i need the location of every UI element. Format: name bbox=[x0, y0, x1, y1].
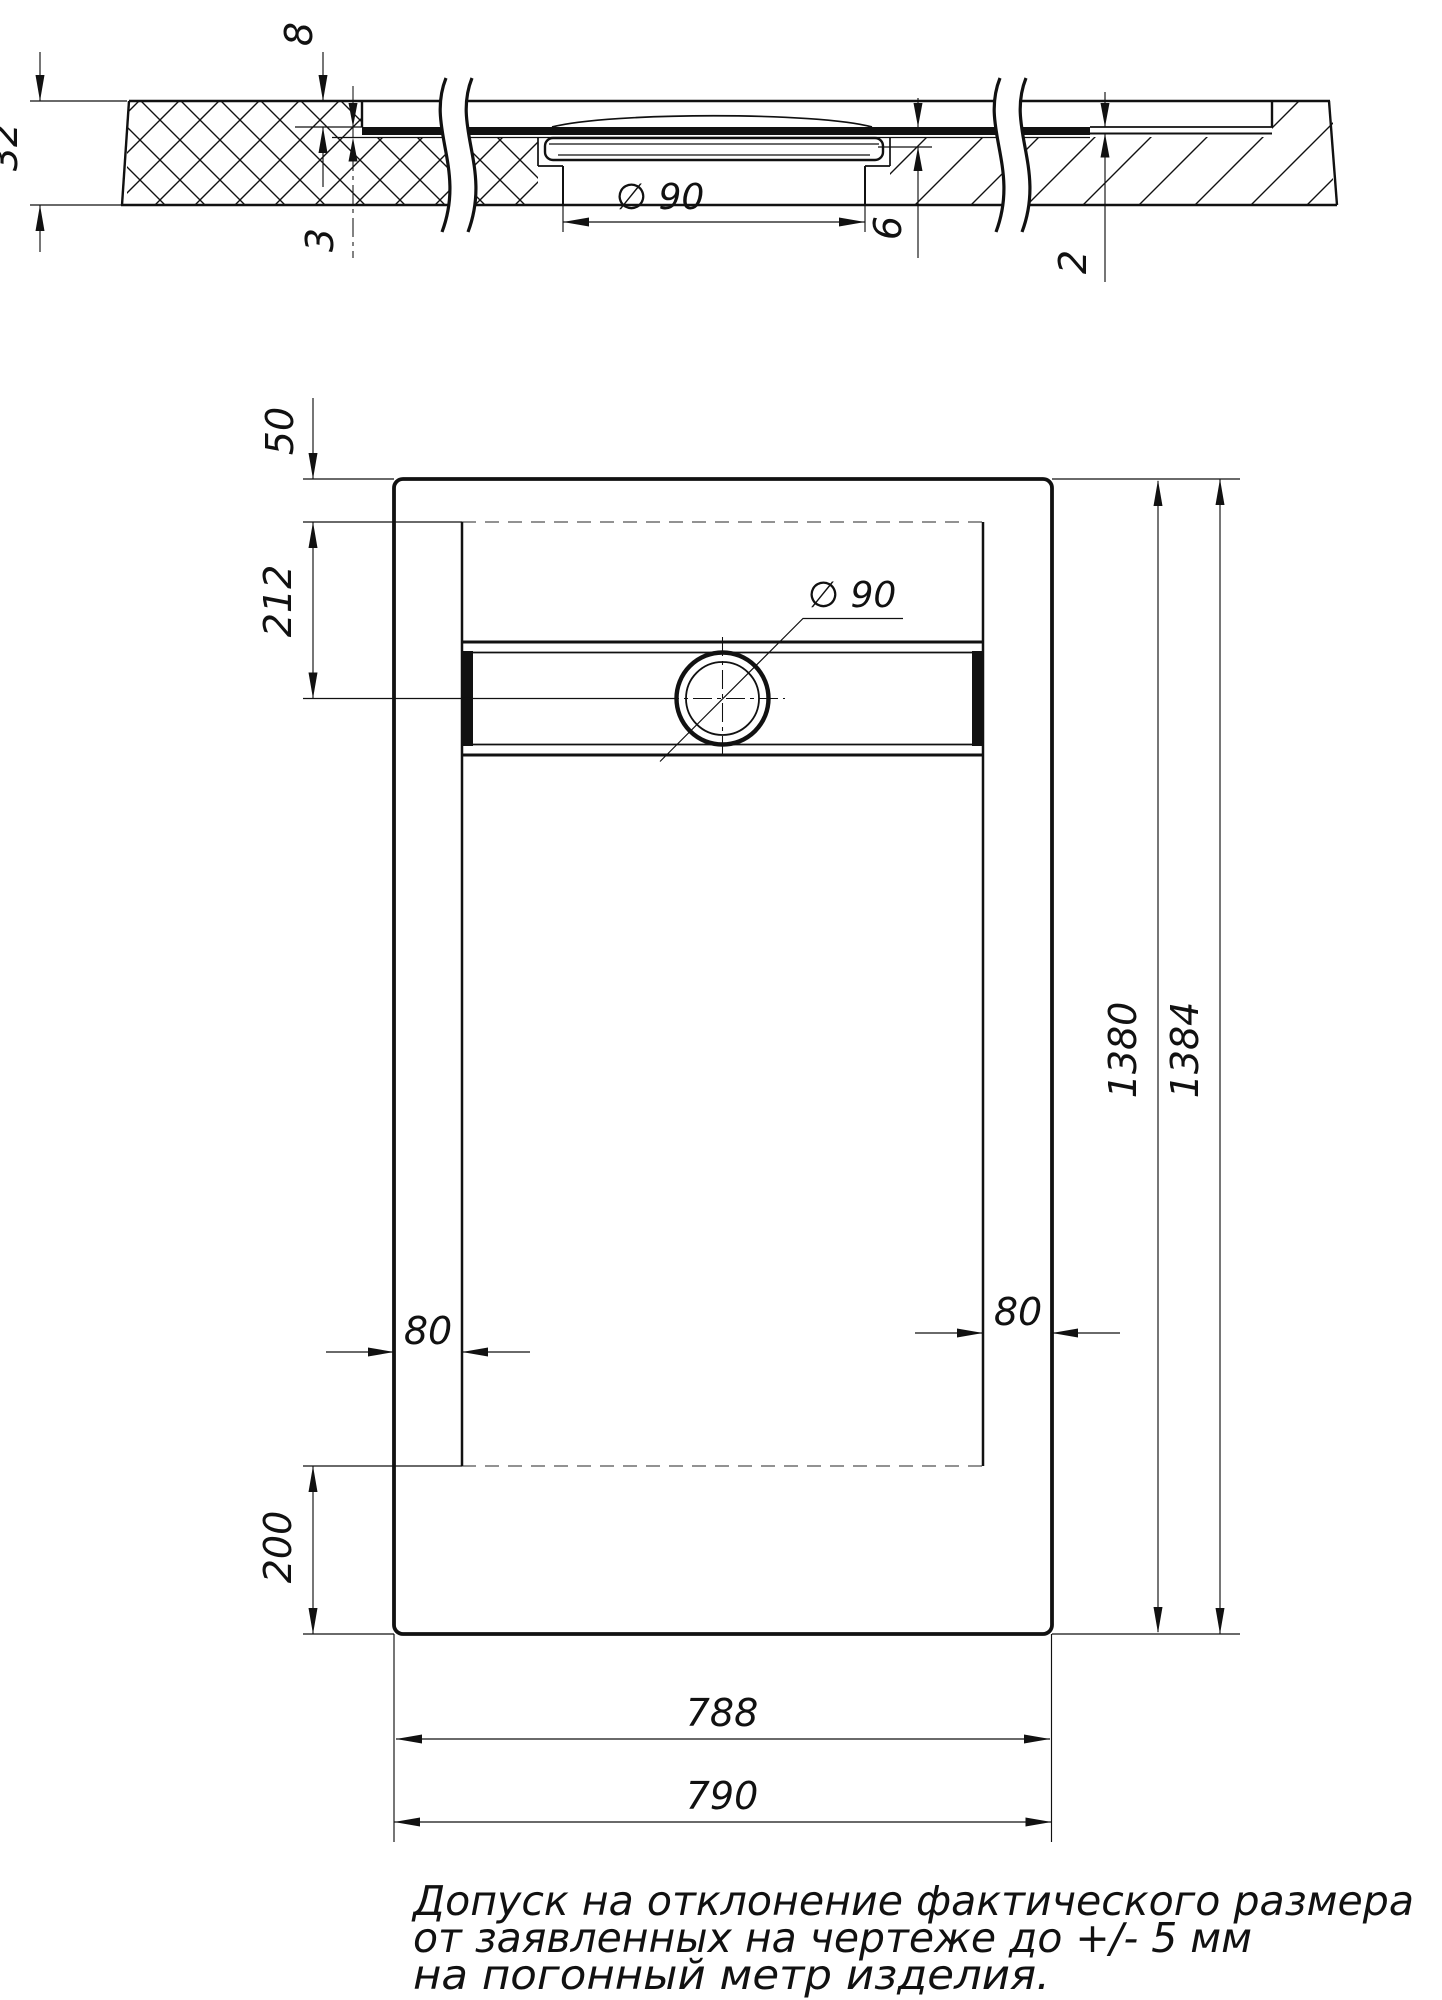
dim-label-50: 50 bbox=[258, 407, 302, 455]
dim-label-3: 3 bbox=[298, 228, 342, 252]
drain-dome-arc bbox=[552, 116, 872, 127]
dim-label-8: 8 bbox=[277, 22, 321, 46]
dim-label-212: 212 bbox=[256, 565, 300, 638]
section-view: 32 8 3 6 2 bbox=[0, 22, 1337, 282]
drain-seat-pocket bbox=[539, 137, 889, 166]
plan-view: ∅ 90 50 212 200 bbox=[256, 398, 1240, 1842]
note-line-3: на погонный метр изделия. bbox=[413, 1951, 1050, 1999]
section-right-rim-material bbox=[1272, 101, 1333, 205]
technical-drawing: 32 8 3 6 2 bbox=[0, 0, 1442, 2000]
dim-32: 32 bbox=[0, 52, 127, 252]
dim-label-diameter-plan: ∅ 90 bbox=[808, 575, 897, 616]
dim-label-diameter-section: ∅ 90 bbox=[616, 177, 705, 218]
dim-label-80-left: 80 bbox=[404, 1309, 452, 1353]
dim-label-788: 788 bbox=[686, 1691, 759, 1735]
dim-label-200: 200 bbox=[256, 1511, 300, 1584]
dim-1384: 1384 bbox=[1163, 479, 1225, 1634]
section-right-floor-material bbox=[890, 137, 1272, 205]
dim-80-right: 80 bbox=[915, 1290, 1120, 1338]
dim-label-2: 2 bbox=[1051, 250, 1095, 274]
dim-1380: 1380 bbox=[1052, 479, 1240, 1634]
dim-label-6: 6 bbox=[866, 216, 910, 240]
dim-label-80-right: 80 bbox=[994, 1290, 1042, 1334]
dim-label-32: 32 bbox=[0, 123, 26, 171]
dim-label-790: 790 bbox=[686, 1774, 759, 1818]
channel-right-cap bbox=[972, 651, 983, 746]
basin-floor-band bbox=[362, 127, 1090, 135]
tolerance-note: Допуск на отклонение фактического размер… bbox=[411, 1877, 1414, 1999]
dim-label-1384: 1384 bbox=[1163, 1002, 1207, 1099]
dim-50: 50 bbox=[258, 398, 462, 522]
dim-label-1380: 1380 bbox=[1101, 1002, 1145, 1099]
drain-hole-pocket bbox=[564, 166, 864, 204]
drawing-canvas: 32 8 3 6 2 bbox=[0, 0, 1442, 2000]
dim-diameter-90-plan: ∅ 90 bbox=[660, 575, 903, 762]
dim-80-left: 80 bbox=[326, 1309, 530, 1357]
dim-790: 790 bbox=[394, 1774, 1052, 1827]
dim-200: 200 bbox=[256, 1466, 462, 1634]
